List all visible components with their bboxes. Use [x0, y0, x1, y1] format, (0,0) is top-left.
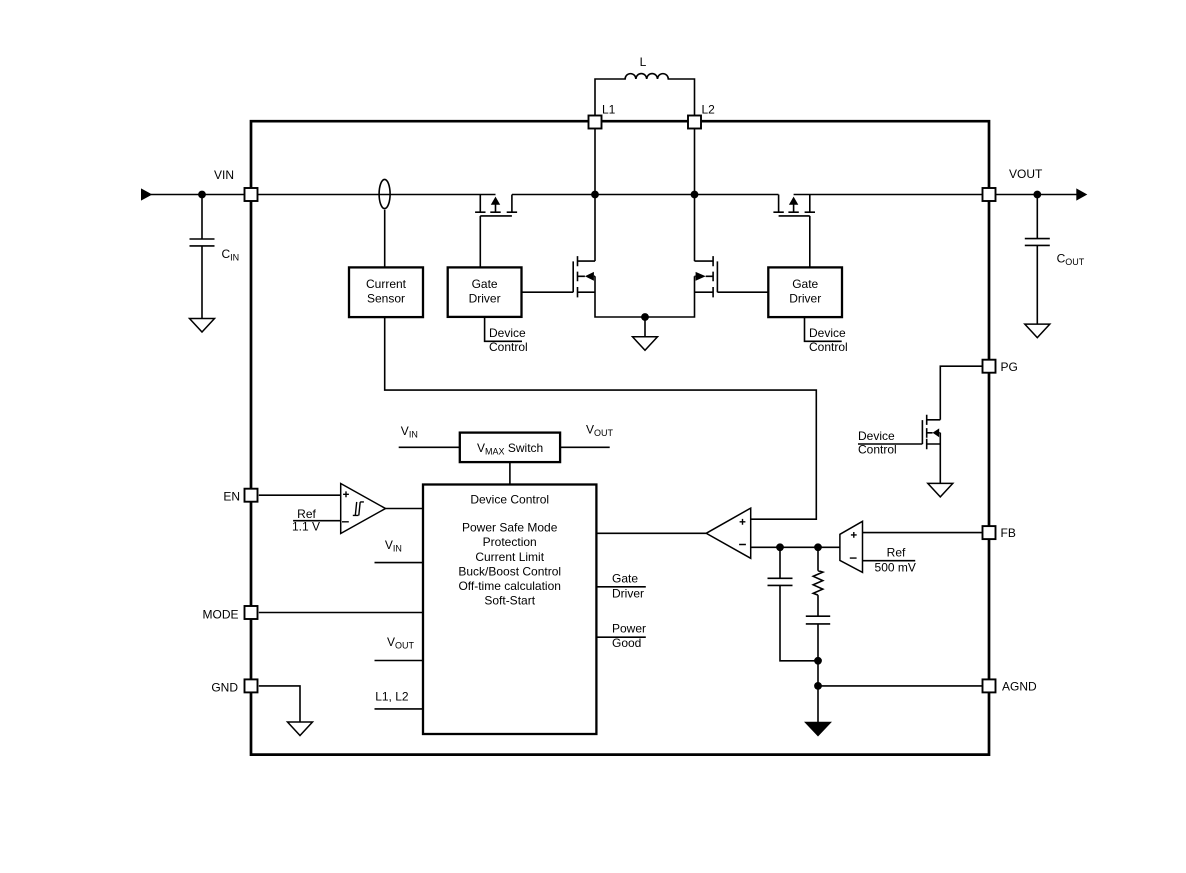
svg-text:Power Safe Mode: Power Safe Mode [462, 521, 558, 535]
svg-text:MODE: MODE [203, 607, 239, 621]
svg-text:EN: EN [223, 490, 240, 504]
svg-text:VOUT: VOUT [1009, 167, 1043, 181]
svg-text:FB: FB [1001, 526, 1016, 540]
svg-text:Soft-Start: Soft-Start [484, 594, 535, 608]
svg-text:L1, L2: L1, L2 [375, 690, 409, 704]
svg-text:1.1 V: 1.1 V [292, 520, 320, 534]
svg-text:Device: Device [809, 326, 846, 340]
svg-text:Protection: Protection [483, 535, 537, 549]
svg-text:Sensor: Sensor [367, 292, 405, 306]
svg-text:Driver: Driver [612, 587, 644, 601]
svg-text:Control: Control [809, 340, 848, 354]
svg-text:VIN: VIN [214, 168, 234, 182]
svg-text:Current: Current [366, 277, 407, 291]
svg-text:Driver: Driver [789, 292, 821, 306]
svg-text:Gate: Gate [472, 277, 498, 291]
svg-text:PG: PG [1001, 360, 1018, 374]
svg-text:L2: L2 [702, 103, 716, 117]
svg-text:500 mV: 500 mV [875, 560, 916, 574]
svg-text:Ref: Ref [887, 545, 906, 559]
svg-text:Power: Power [612, 622, 646, 636]
svg-text:Gate: Gate [612, 571, 638, 585]
svg-text:Good: Good [612, 636, 641, 650]
svg-text:L1: L1 [602, 103, 616, 117]
svg-text:Buck/Boost Control: Buck/Boost Control [458, 564, 561, 578]
svg-text:GND: GND [211, 681, 238, 695]
svg-text:Off-time calculation: Off-time calculation [458, 579, 561, 593]
svg-text:AGND: AGND [1002, 680, 1037, 694]
svg-text:Gate: Gate [792, 277, 818, 291]
svg-text:Driver: Driver [469, 292, 501, 306]
svg-text:Control: Control [489, 340, 528, 354]
svg-text:Control: Control [858, 442, 897, 456]
svg-text:L: L [640, 55, 647, 69]
svg-text:Device Control: Device Control [470, 493, 549, 507]
svg-text:Device: Device [489, 326, 526, 340]
svg-text:Current Limit: Current Limit [475, 550, 544, 564]
svg-text:Device: Device [858, 429, 895, 443]
